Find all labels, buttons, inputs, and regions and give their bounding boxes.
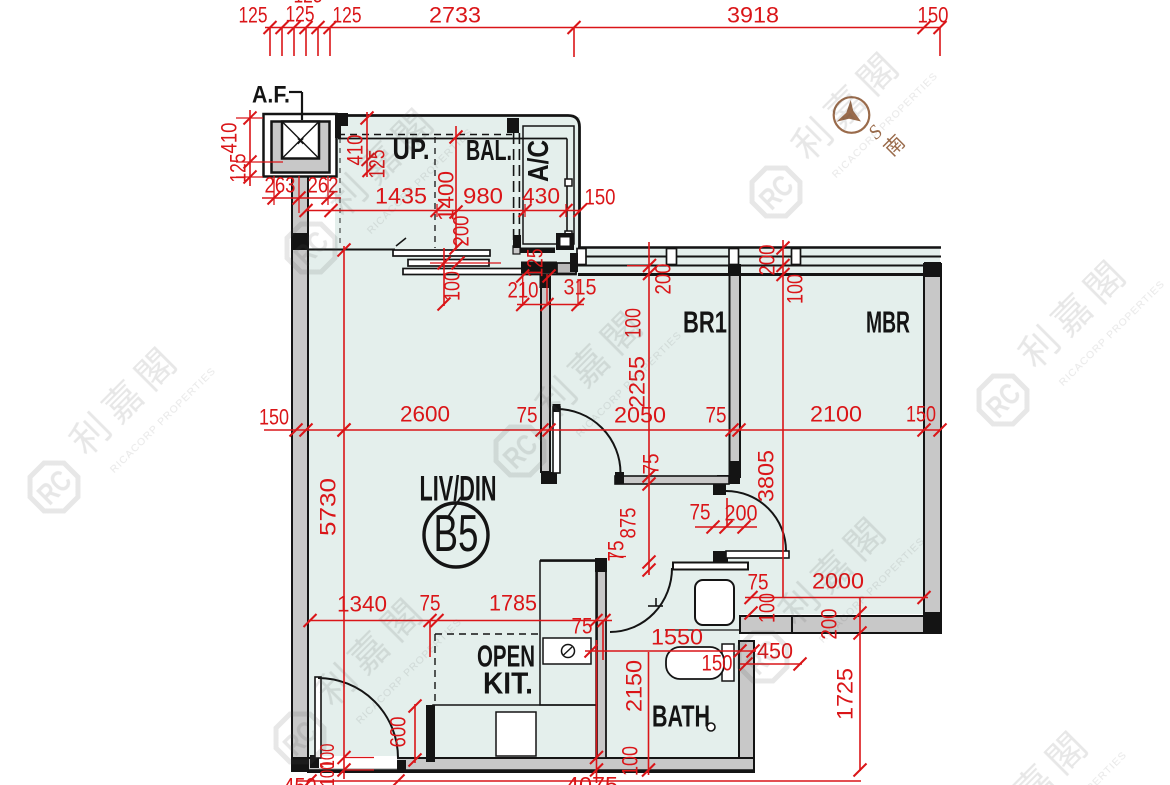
svg-text:BR1: BR1 (683, 305, 727, 340)
svg-text:450: 450 (284, 774, 317, 785)
svg-text:875: 875 (616, 508, 641, 539)
svg-text:2100: 2100 (810, 402, 862, 427)
svg-text:2733: 2733 (429, 3, 481, 28)
svg-text:125: 125 (333, 3, 362, 28)
svg-text:4075: 4075 (566, 773, 618, 785)
svg-text:150: 150 (585, 185, 616, 210)
svg-text:150: 150 (918, 3, 949, 28)
svg-text:600: 600 (386, 717, 411, 748)
svg-text:1400: 1400 (434, 171, 459, 221)
svg-text:3918: 3918 (727, 3, 779, 28)
svg-text:75: 75 (639, 454, 664, 475)
svg-text:100: 100 (618, 746, 643, 776)
svg-text:315: 315 (564, 275, 597, 300)
svg-text:100: 100 (783, 274, 808, 304)
svg-text:2050: 2050 (614, 403, 666, 428)
svg-text:430: 430 (522, 184, 560, 209)
svg-text:3805: 3805 (754, 450, 779, 502)
svg-text:B5: B5 (434, 505, 479, 563)
svg-text:2600: 2600 (400, 402, 450, 427)
svg-text:200: 200 (651, 264, 676, 295)
svg-text:1785: 1785 (489, 591, 537, 616)
svg-text:A.F.: A.F. (252, 82, 290, 109)
svg-text:A/C: A/C (523, 140, 555, 182)
svg-text:BAL.: BAL. (466, 135, 512, 167)
svg-text:200: 200 (725, 501, 758, 526)
svg-text:200: 200 (755, 245, 780, 276)
svg-text:2150: 2150 (622, 660, 647, 712)
svg-text:200: 200 (449, 216, 474, 247)
svg-text:1550: 1550 (651, 625, 703, 650)
svg-text:125: 125 (294, 0, 323, 8)
svg-text:MBR: MBR (866, 305, 910, 340)
svg-text:BATH: BATH (652, 699, 710, 734)
svg-text:75: 75 (572, 614, 593, 639)
svg-text:利嘉閣: 利嘉閣 (63, 336, 190, 463)
svg-text:150: 150 (906, 402, 936, 427)
svg-text:KIT.: KIT. (483, 666, 533, 701)
svg-text:5730: 5730 (316, 478, 341, 536)
svg-text:125: 125 (226, 154, 251, 183)
svg-text:980: 980 (463, 184, 503, 209)
svg-text:150: 150 (702, 651, 733, 676)
svg-text:×: × (297, 134, 305, 149)
svg-text:75: 75 (517, 403, 538, 428)
svg-text:75: 75 (706, 403, 727, 428)
svg-text:利嘉閣: 利嘉閣 (1012, 249, 1139, 376)
svg-text:75: 75 (604, 541, 629, 562)
svg-text:100: 100 (440, 271, 465, 301)
svg-text:利嘉閣: 利嘉閣 (974, 720, 1101, 785)
svg-text:1340: 1340 (337, 592, 387, 617)
svg-text:410: 410 (217, 123, 242, 154)
svg-text:210: 210 (508, 278, 539, 303)
svg-text:1725: 1725 (833, 668, 858, 720)
svg-text:125: 125 (239, 3, 268, 28)
svg-text:75: 75 (690, 500, 711, 525)
svg-text:150: 150 (259, 405, 289, 430)
svg-text:75: 75 (748, 570, 769, 595)
svg-text:263: 263 (265, 173, 296, 198)
